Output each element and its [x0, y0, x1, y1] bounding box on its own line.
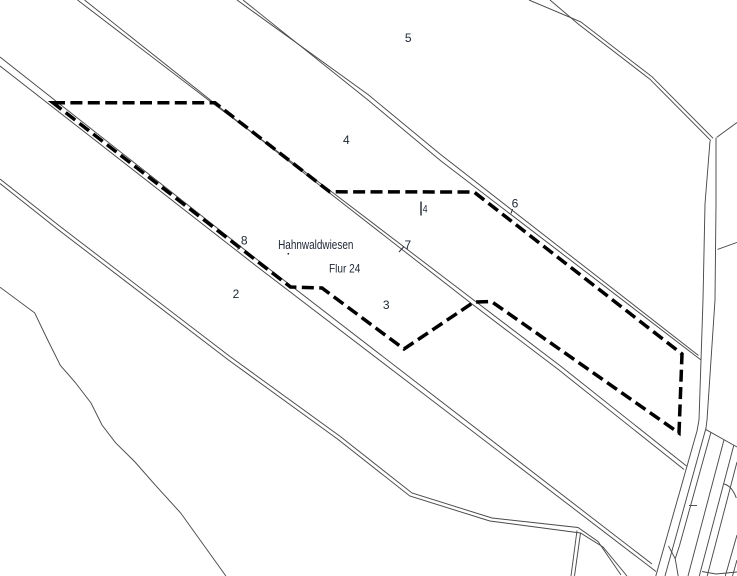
svg-text:4: 4: [423, 203, 428, 215]
svg-text:7: 7: [404, 238, 411, 252]
svg-text:Flur 24: Flur 24: [329, 262, 361, 276]
svg-text:4: 4: [343, 133, 350, 147]
svg-text:Hahnwaldwiesen: Hahnwaldwiesen: [278, 237, 353, 252]
svg-text:8: 8: [241, 233, 248, 247]
svg-text:5: 5: [405, 31, 412, 45]
svg-text:6: 6: [512, 197, 519, 211]
svg-text:3: 3: [383, 298, 390, 312]
svg-text:2: 2: [233, 287, 240, 301]
